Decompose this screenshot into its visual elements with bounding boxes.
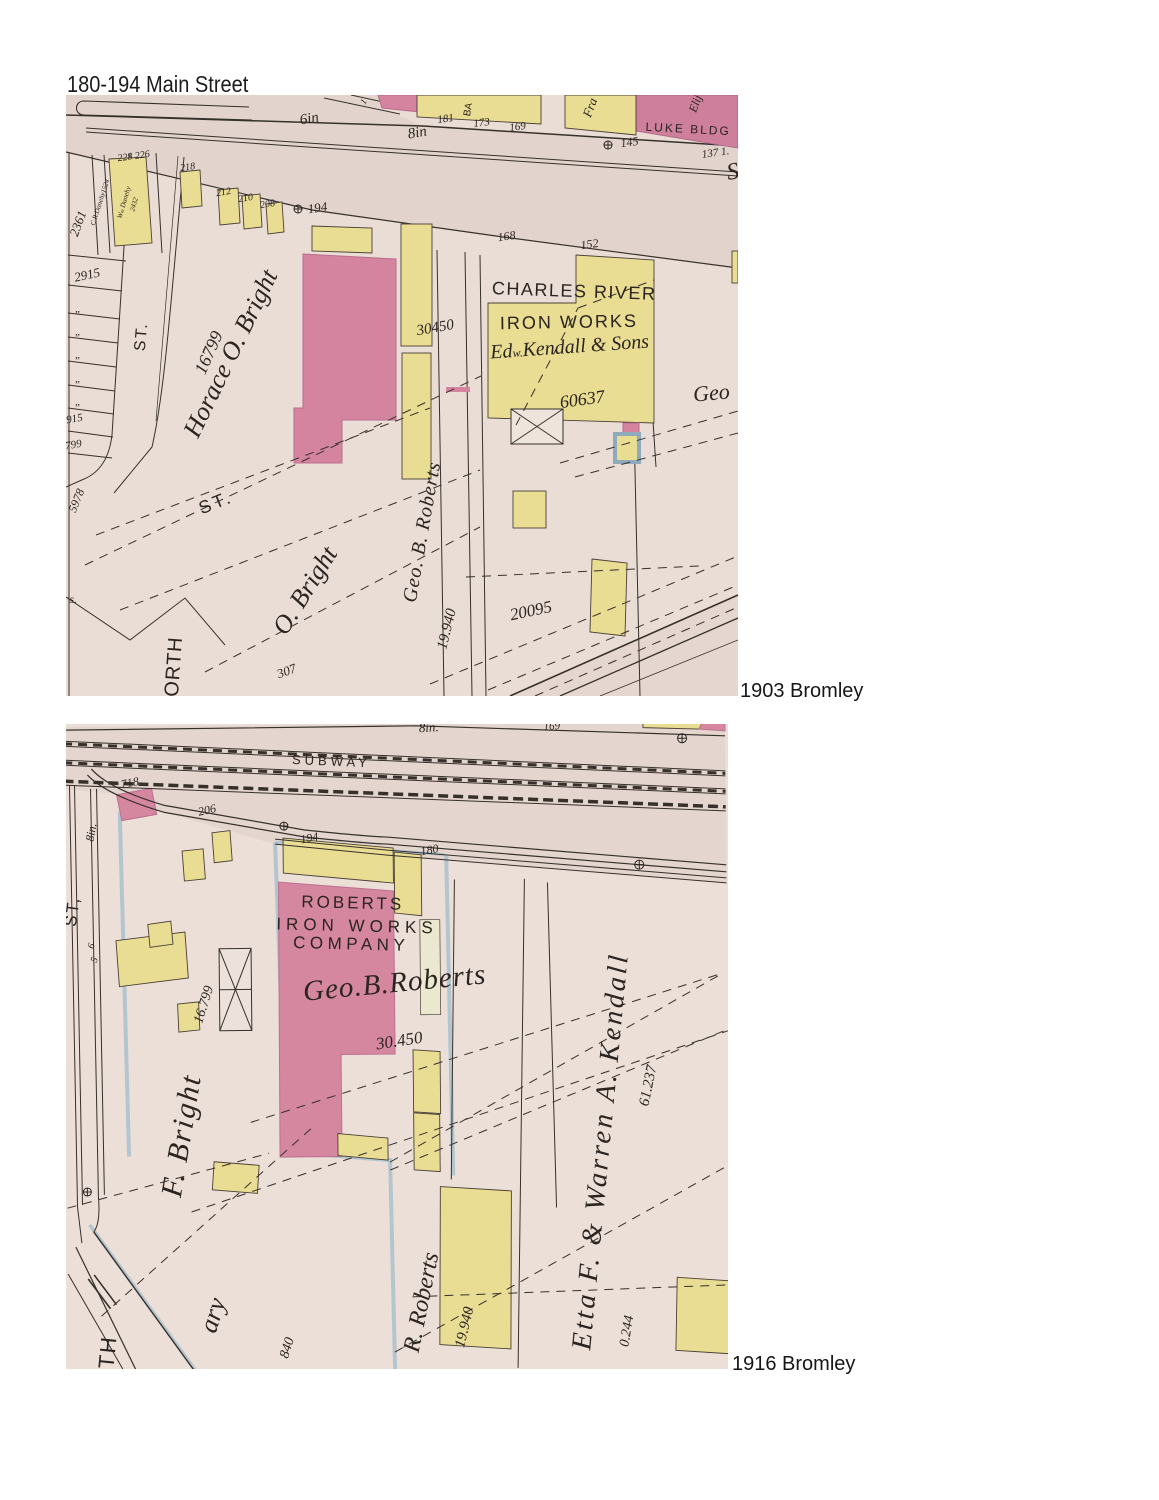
svg-text:COMPANY: COMPANY xyxy=(293,933,410,955)
svg-text:8in.: 8in. xyxy=(418,724,439,735)
svg-text:145: 145 xyxy=(620,134,640,150)
svg-text:'s.: 's. xyxy=(67,592,77,606)
svg-text:6in: 6in xyxy=(298,110,320,129)
svg-text:„: „ xyxy=(75,303,81,315)
svg-text:TH: TH xyxy=(93,1334,121,1369)
svg-text:„: „ xyxy=(75,326,81,338)
svg-text:152: 152 xyxy=(580,236,600,252)
svg-text:IRON WORKS: IRON WORKS xyxy=(500,311,638,333)
svg-text:168: 168 xyxy=(497,228,517,244)
svg-text:ST.: ST. xyxy=(132,321,151,351)
svg-text:169: 169 xyxy=(543,724,561,733)
svg-text:Geo: Geo xyxy=(692,378,731,406)
svg-text:„: „ xyxy=(75,349,81,361)
svg-text:„: „ xyxy=(75,396,81,408)
svg-text:173: 173 xyxy=(473,116,492,130)
svg-text:8in: 8in xyxy=(406,124,428,143)
svg-text:ROBERTS: ROBERTS xyxy=(301,892,404,914)
svg-text:194: 194 xyxy=(307,199,329,217)
svg-text:8in.: 8in. xyxy=(83,822,100,842)
svg-text:BA: BA xyxy=(462,102,475,117)
svg-text:169: 169 xyxy=(509,120,528,134)
svg-text:ORTH: ORTH xyxy=(161,636,187,696)
svg-text:181: 181 xyxy=(437,112,455,126)
svg-text:„: „ xyxy=(75,373,81,385)
svg-text:218: 218 xyxy=(179,161,195,174)
